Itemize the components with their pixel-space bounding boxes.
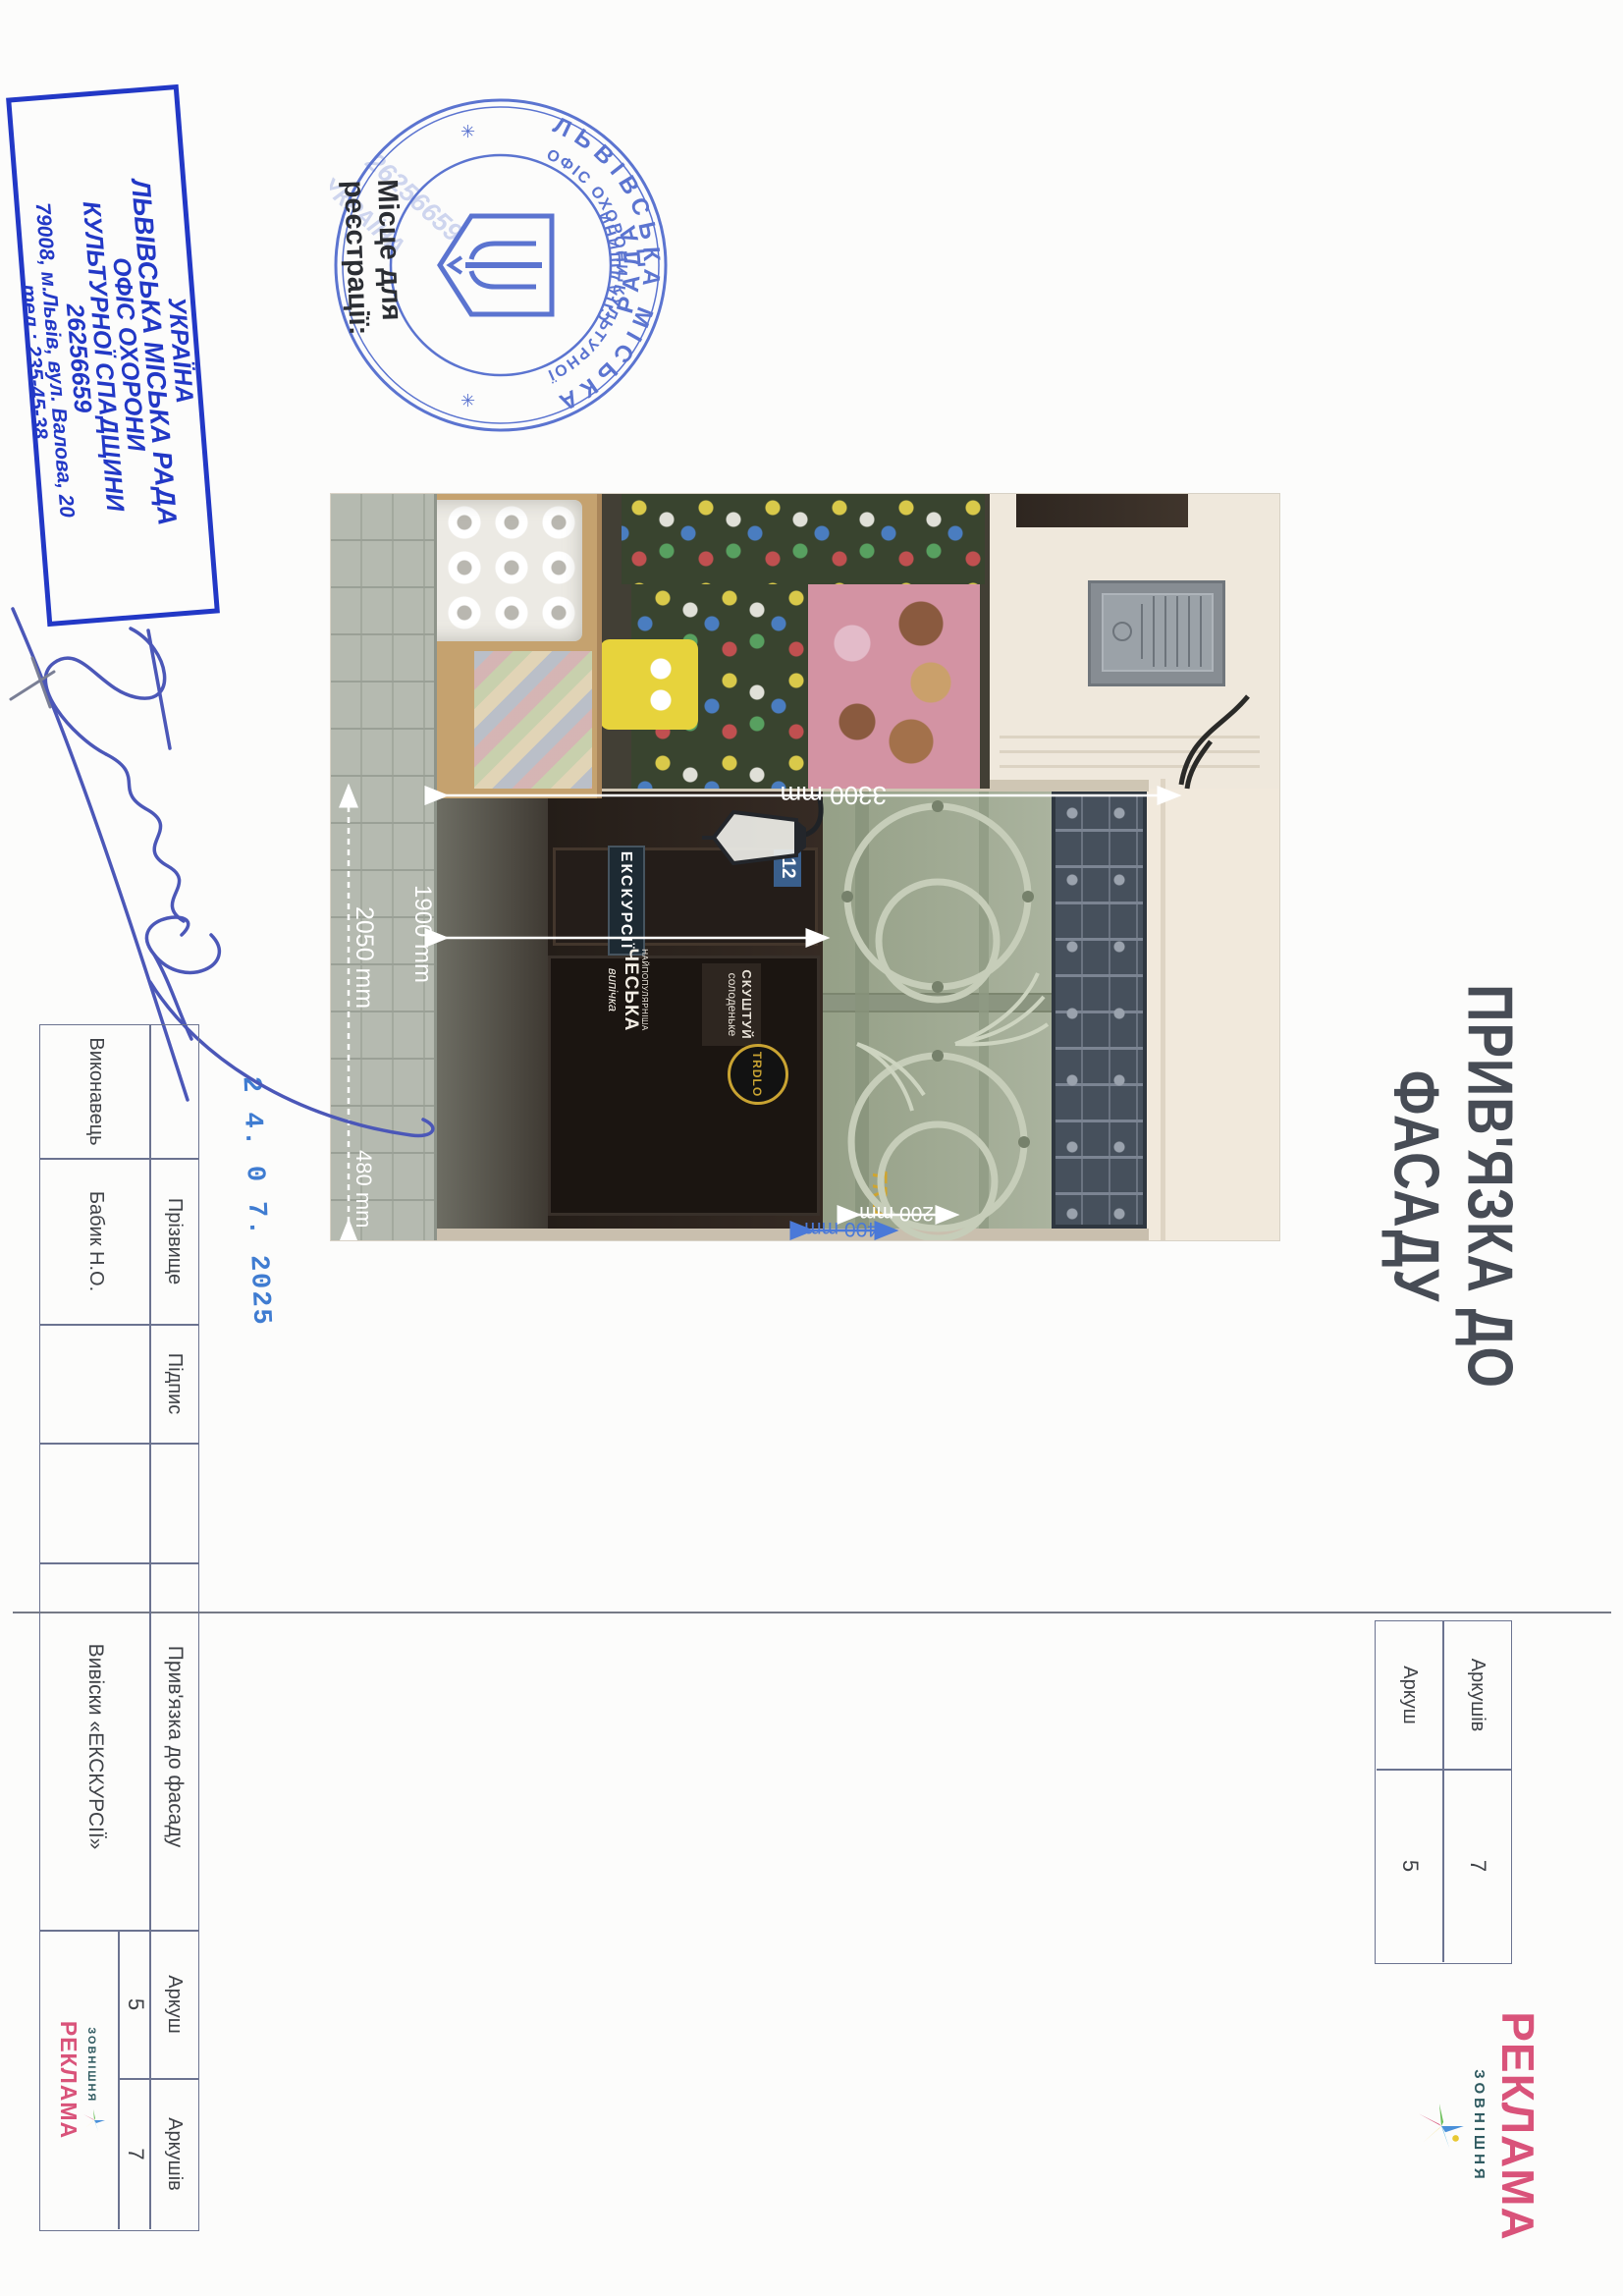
gate-fronds: [857, 973, 1048, 1111]
corner-logo-star-icon: [1415, 2100, 1468, 2153]
gate-ornament: [847, 806, 1028, 1238]
corner-sheets-value: 7: [1444, 1770, 1511, 1962]
titleblock-logo-cell: ЗОВНІШНЯ РЕКЛАМА: [40, 1931, 119, 2229]
executor-label: Виконавець: [40, 1025, 151, 1158]
sheets-label: Аркушів: [151, 2079, 198, 2229]
gate-bolts: [841, 800, 1034, 1148]
seal-star-right: ✳: [458, 393, 477, 408]
sheet-value: 5: [120, 1931, 151, 2078]
sheet-label: Аркуш: [151, 1931, 198, 2078]
dim-3300: 3300 mm: [437, 781, 1169, 810]
seal-star-left: ✳: [458, 124, 477, 138]
landscape-document: ПРИВ'ЯЗКА ДО ФАСАДУ УКРАЇНА ЛЬВІВСЬКА МІ…: [0, 0, 1623, 2296]
corner-sheet-value: 5: [1377, 1770, 1443, 1962]
doc-subject-cell: Вивіски «ЕКСКУРСІЇ»: [40, 1563, 151, 1930]
sheets-value: 7: [120, 2079, 151, 2229]
scanned-page: ПРИВ'ЯЗКА ДО ФАСАДУ УКРАЇНА ЛЬВІВСЬКА МІ…: [0, 0, 1623, 2296]
logo-line-top: ЗОВНІШНЯ: [85, 2027, 97, 2103]
corner-logo-big: РЕКЛАМА: [1491, 2003, 1544, 2249]
logo-star-icon: [81, 2107, 107, 2133]
corner-sheets-label: Аркушів: [1444, 1621, 1511, 1769]
corner-logo-small: ЗОВНІШНЯ: [1471, 2069, 1488, 2182]
svg-text:400 mm: 400 mm: [804, 1218, 879, 1240]
dim-400: 400 mm: [802, 1218, 887, 1240]
corner-sheet-label: Аркуш: [1377, 1621, 1443, 1769]
logo-line-bottom: РЕКЛАМА: [55, 1931, 81, 2229]
titleblock-frame-line: [13, 1612, 1611, 1613]
doc-title-cell: Прив'язка до фасаду: [151, 1563, 198, 1930]
corner-sheet-table: Аркушів 7 Аркуш 5: [1375, 1620, 1512, 1964]
signature-label: Підпис: [151, 1325, 198, 1443]
plaque-text-lines: [1113, 596, 1201, 667]
titleblock-table: Виконавець Прізвище Бабик Н.О. Підпис Пр…: [39, 1024, 199, 2231]
page-title: ПРИВ'ЯЗКА ДО ФАСАДУ: [1380, 863, 1527, 1510]
corner-logo: РЕКЛАМА ЗОВНІШНЯ: [1358, 2003, 1544, 2249]
surname-value: Бабик Н.О.: [40, 1159, 151, 1324]
registration-note: Місце для реєстрації:: [337, 179, 411, 407]
org-rect-stamp: УКРАЇНА ЛЬВІВСЬКА МІСЬКА РАДА ОФІС ОХОРО…: [6, 84, 220, 627]
svg-text:3300 mm: 3300 mm: [781, 781, 887, 810]
wall-cable: [1181, 696, 1248, 789]
surname-label: Прізвище: [151, 1159, 198, 1324]
